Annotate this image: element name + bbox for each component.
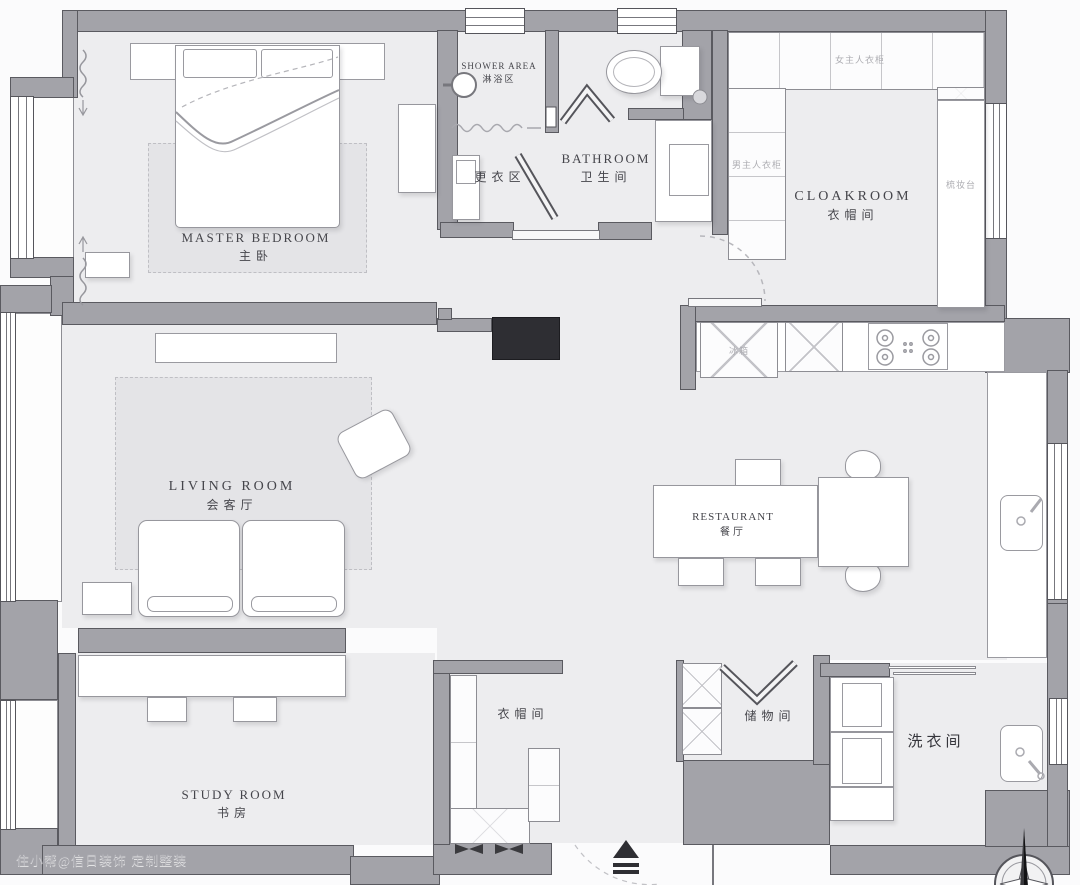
compass-icon: [995, 828, 1053, 885]
room-name-en: STUDY ROOM: [181, 786, 286, 805]
door-swing-arc: [700, 236, 765, 301]
room-name-en: CLOAKROOM: [794, 187, 911, 207]
room-label-shower-area: SHOWER AREA 淋浴区: [461, 60, 536, 86]
room-label-dining-room: RESTAURANT 餐厅: [692, 510, 774, 540]
curtain-symbol: [79, 50, 87, 305]
room-name-zh: 更衣区: [474, 169, 525, 186]
room-name-zh: 书房: [181, 805, 286, 822]
room-label-closet: 衣帽间: [497, 706, 548, 723]
cabinet-label-dressing-table: 梳妆台: [946, 178, 976, 191]
cabinet-label-husband-wardrobe: 男主人衣柜: [732, 158, 782, 171]
cabinet-label-wife-wardrobe: 女主人衣柜: [835, 53, 885, 66]
room-name-en: BATHROOM: [562, 150, 651, 169]
folding-door: [722, 663, 795, 700]
room-name-en: LIVING ROOM: [169, 477, 296, 497]
room-name-zh: 主卧: [182, 248, 331, 265]
door-leaf: [518, 155, 555, 218]
entry-arrow-icon: [613, 840, 639, 874]
room-label-dressing-area: 更衣区: [474, 169, 525, 186]
watermark: 住小帮@信日装饰 定制整装: [16, 850, 187, 869]
room-name-zh: 会客厅: [169, 497, 296, 514]
room-name-zh: 衣帽间: [497, 706, 548, 723]
room-label-bathroom: BATHROOM 卫生间: [562, 150, 651, 186]
room-name-zh: 衣帽间: [794, 207, 911, 224]
room-label-master-bedroom: MASTER BEDROOM 主卧: [182, 229, 331, 265]
wall-detail-circle: [693, 90, 707, 104]
shower-curtain-wave: [452, 125, 541, 132]
fixture-label-fridge: 冰箱: [729, 344, 749, 357]
room-label-study-room: STUDY ROOM 书房: [181, 786, 286, 822]
room-name-zh: 储物间: [744, 708, 795, 725]
room-label-cloakroom: CLOAKROOM 衣帽间: [794, 187, 911, 225]
faucet-icon: [1016, 499, 1044, 779]
room-name-en: SHOWER AREA: [461, 60, 536, 73]
folding-door: [546, 90, 612, 127]
room-label-storage: 储物间: [744, 708, 795, 725]
room-name-zh: 淋浴区: [461, 73, 536, 86]
room-name-zh: 卫生间: [562, 169, 651, 186]
cut-mark-bowtie: [455, 844, 523, 854]
room-label-laundry: 洗衣间: [907, 732, 964, 754]
room-name-zh: 餐厅: [692, 526, 774, 541]
floor-plan: MASTER BEDROOM 主卧 SHOWER AREA 淋浴区 更衣区 BA…: [0, 0, 1080, 885]
room-label-living-room: LIVING ROOM 会客厅: [169, 477, 296, 515]
room-name-en: RESTAURANT: [692, 510, 774, 526]
bed-blanket-lines: [176, 57, 339, 152]
room-name-zh: 洗衣间: [907, 732, 964, 754]
room-name-en: MASTER BEDROOM: [182, 229, 331, 248]
stove-burners: [877, 330, 939, 365]
